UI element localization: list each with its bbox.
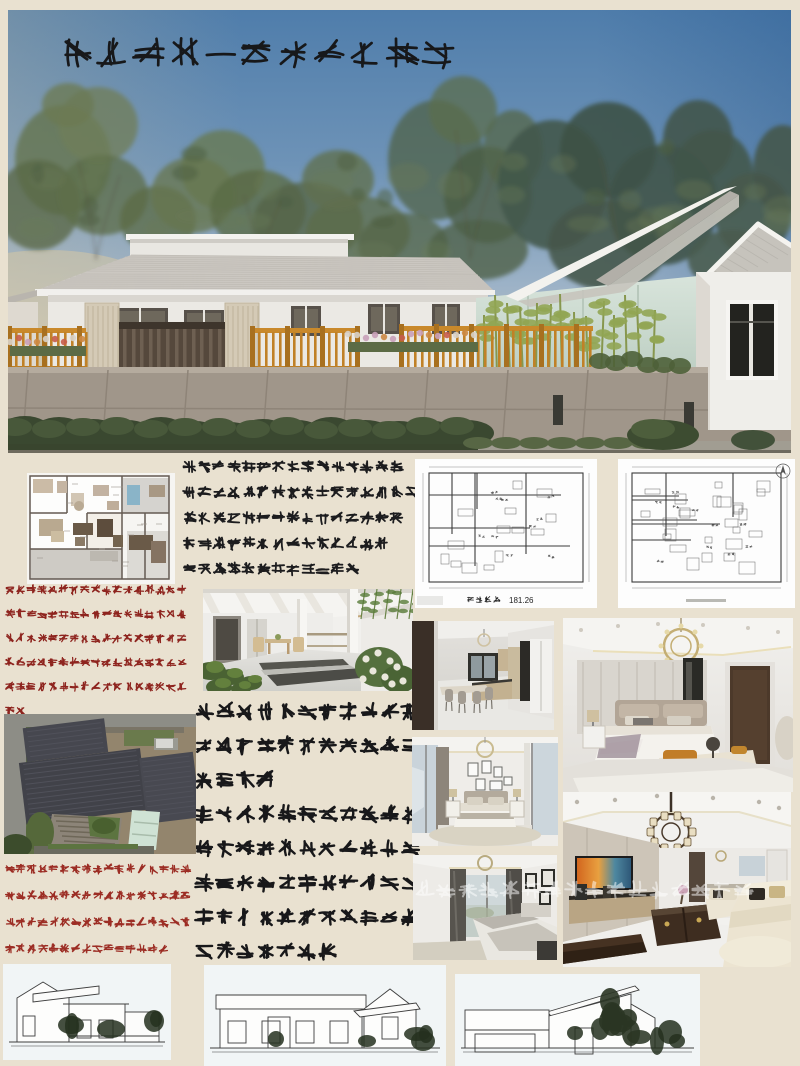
svg-text:181.26: 181.26 <box>509 596 534 605</box>
